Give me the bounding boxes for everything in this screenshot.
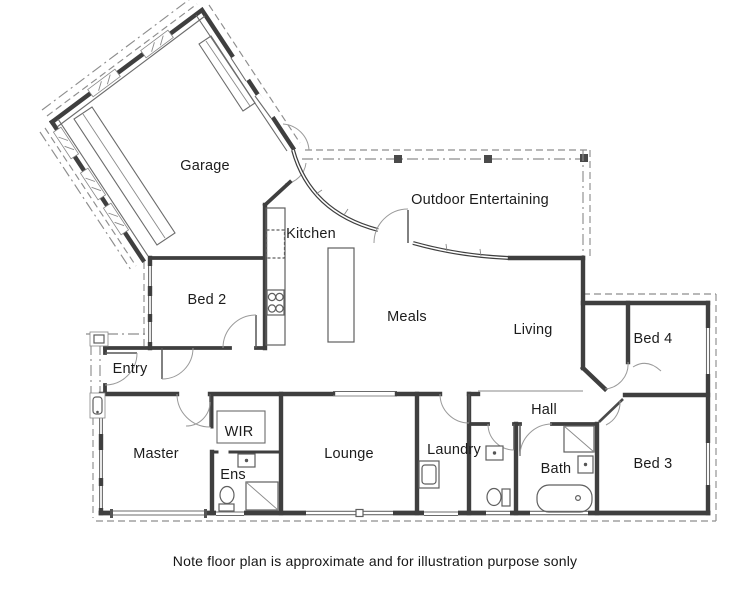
room-label-hall: Hall bbox=[531, 402, 557, 418]
wc-fixtures bbox=[486, 446, 510, 506]
room-label-bed3: Bed 3 bbox=[634, 456, 673, 472]
disclaimer-note: Note floor plan is approximate and for i… bbox=[0, 553, 750, 569]
room-label-meals: Meals bbox=[387, 309, 427, 325]
room-label-ens: Ens bbox=[220, 467, 246, 483]
room-label-bed4: Bed 4 bbox=[634, 331, 673, 347]
room-label-laundry: Laundry bbox=[427, 442, 481, 458]
bathtub bbox=[537, 485, 592, 512]
room-label-garage: Garage bbox=[180, 158, 230, 174]
kitchen-island bbox=[328, 248, 354, 342]
room-label-master: Master bbox=[133, 446, 179, 462]
kitchen-bench bbox=[266, 208, 285, 345]
room-label-wir: WIR bbox=[225, 424, 254, 440]
floor-plan-drawing bbox=[0, 0, 750, 592]
garage-structure bbox=[52, 10, 309, 260]
laundry-tub bbox=[419, 461, 439, 488]
room-label-bed2: Bed 2 bbox=[188, 292, 227, 308]
room-label-entry: Entry bbox=[113, 361, 148, 377]
porch-piers bbox=[90, 332, 108, 418]
door-swings bbox=[105, 315, 661, 456]
room-label-outdoor-entertaining: Outdoor Entertaining bbox=[411, 192, 549, 208]
fixtures bbox=[90, 208, 594, 512]
interior-walls bbox=[105, 303, 708, 513]
room-label-kitchen: Kitchen bbox=[286, 226, 336, 242]
floor-plan-page: Garage Outdoor Entertaining Kitchen Bed … bbox=[0, 0, 750, 592]
room-label-bath: Bath bbox=[541, 461, 572, 477]
room-label-lounge: Lounge bbox=[324, 446, 374, 462]
room-label-living: Living bbox=[513, 322, 552, 338]
